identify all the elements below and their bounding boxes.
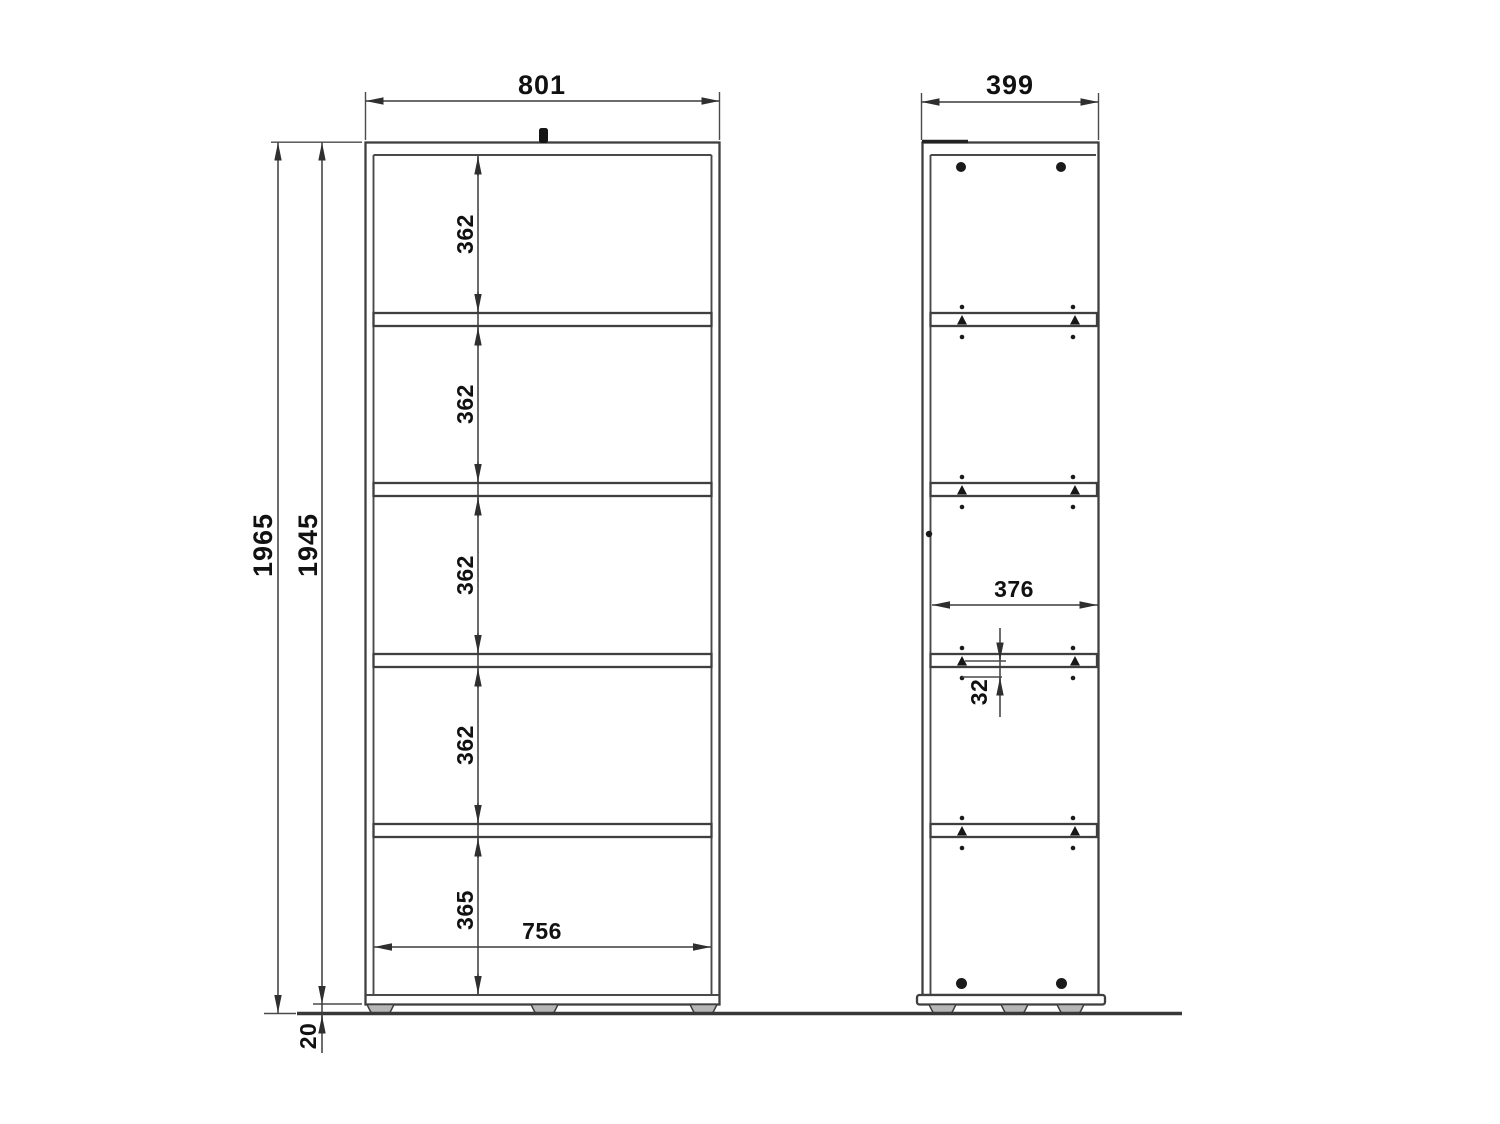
compartment-height-label-4: 362 xyxy=(452,725,478,765)
compartment-height-label-1: 362 xyxy=(452,214,478,254)
side-depth-dim-label: 399 xyxy=(986,70,1034,100)
side-plinth xyxy=(917,995,1105,1005)
front-inner-width-dim-label: 756 xyxy=(522,918,562,944)
shelf-3 xyxy=(374,654,712,667)
top-center-fitting-mark xyxy=(539,128,548,143)
shelf-unit-dimension-drawing: 801 1965 1945 20 362 362 362 xyxy=(0,0,1500,1124)
front-width-dim-label: 801 xyxy=(518,70,566,100)
technical-drawing-page: 801 1965 1945 20 362 362 362 xyxy=(0,0,1500,1124)
plinth-height-dim-label: 20 xyxy=(295,1023,321,1050)
side-cabinet-body xyxy=(923,143,1099,996)
compartment-height-label-2: 362 xyxy=(452,384,478,424)
front-cabinet-body xyxy=(366,143,720,1005)
shelf-4 xyxy=(374,824,712,837)
front-body-height-dim-label: 1945 xyxy=(293,513,323,577)
shelf-1 xyxy=(374,313,712,326)
hole-pitch-dim-label: 32 xyxy=(966,679,992,706)
front-view xyxy=(366,128,720,1014)
back-panel-fixing-hole xyxy=(926,531,932,537)
side-inner-depth-dim-label: 376 xyxy=(994,576,1034,602)
compartment-height-label-5: 365 xyxy=(452,890,478,930)
compartment-height-label-3: 362 xyxy=(452,555,478,595)
front-total-height-dim-label: 1965 xyxy=(248,513,278,577)
shelf-2 xyxy=(374,483,712,496)
